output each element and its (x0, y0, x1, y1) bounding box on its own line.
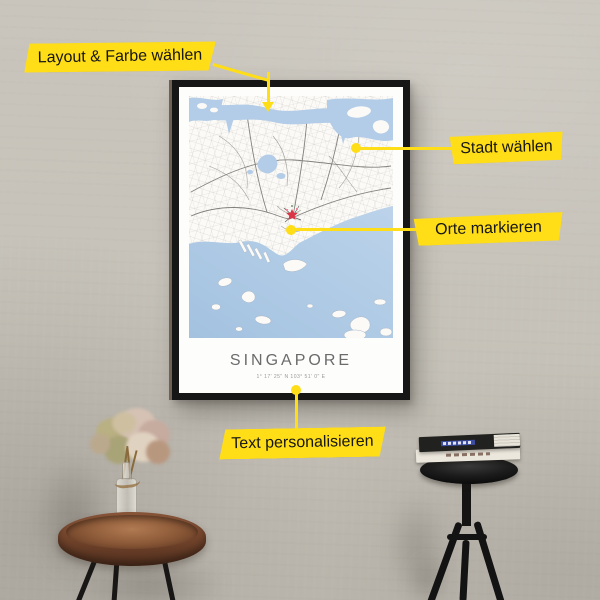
anchor-dot-places (286, 225, 296, 235)
arrow-down-icon (262, 102, 274, 112)
poster-coordinates: 1° 17' 25" N 103° 51' 0" E (196, 374, 386, 379)
stool-crossbar (447, 534, 487, 540)
leader-line-city (356, 147, 452, 150)
leader-line-layout-vertical (267, 72, 270, 103)
poster-title: SINGAPORE (179, 352, 403, 370)
book-spine-text (446, 452, 490, 457)
callout-layout-farbe[interactable]: Layout & Farbe wählen (24, 40, 216, 73)
flower-bloom (146, 440, 170, 464)
anchor-dot-city (351, 143, 361, 153)
anchor-dot-personalize (291, 385, 301, 395)
leader-line-places (292, 228, 416, 231)
framed-map-poster[interactable]: SINGAPORE 1° 17' 25" N 103° 51' 0" E (172, 80, 410, 400)
book-page-edges (494, 434, 520, 447)
singapore-map (189, 96, 393, 338)
book-spine-label (441, 440, 475, 446)
flower-bloom (90, 434, 110, 454)
stool-stem (462, 478, 471, 526)
callout-text-personalisieren[interactable]: Text personalisieren (219, 427, 386, 460)
book-spine-label-text (443, 441, 473, 445)
callout-stadt[interactable]: Stadt wählen (450, 132, 564, 165)
flower-bloom (112, 412, 136, 434)
wooden-tray-bowl (66, 515, 198, 549)
leader-line-personalize (295, 391, 298, 430)
